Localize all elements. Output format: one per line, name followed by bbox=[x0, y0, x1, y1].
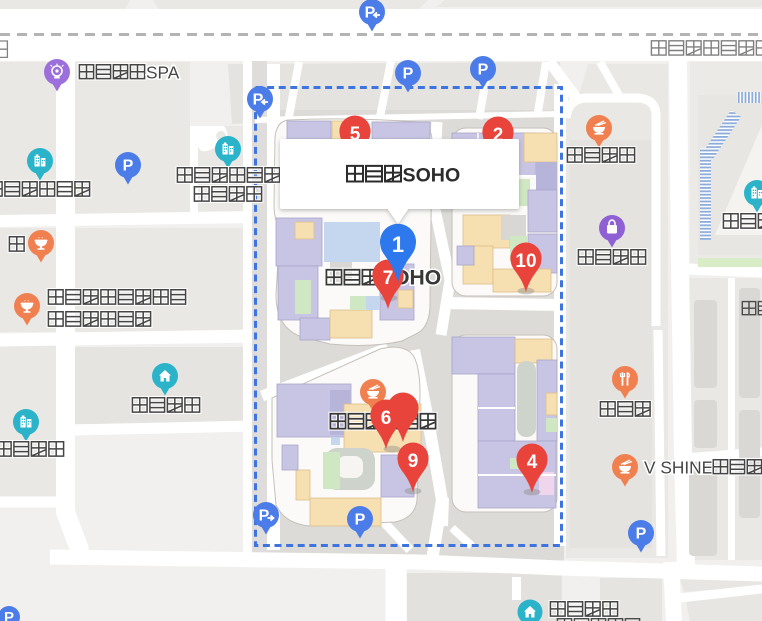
svg-text:V SHINE: V SHINE bbox=[644, 458, 713, 478]
svg-text:4: 4 bbox=[527, 452, 538, 473]
svg-text:7: 7 bbox=[383, 268, 394, 289]
svg-text:P: P bbox=[478, 62, 489, 79]
svg-text:SOHO: SOHO bbox=[403, 165, 461, 187]
svg-text:P: P bbox=[365, 5, 376, 22]
svg-text:P: P bbox=[259, 508, 270, 525]
svg-text:P: P bbox=[123, 158, 134, 175]
svg-text:P: P bbox=[403, 66, 414, 83]
svg-text:P: P bbox=[636, 526, 647, 543]
svg-text:1: 1 bbox=[392, 232, 404, 257]
svg-text:SPA: SPA bbox=[146, 63, 180, 83]
svg-text:P: P bbox=[253, 92, 264, 109]
svg-text:9: 9 bbox=[408, 451, 419, 472]
svg-text:10: 10 bbox=[515, 251, 536, 272]
svg-text:6: 6 bbox=[381, 408, 392, 429]
svg-text:P: P bbox=[355, 512, 366, 529]
svg-text:P: P bbox=[4, 609, 14, 621]
